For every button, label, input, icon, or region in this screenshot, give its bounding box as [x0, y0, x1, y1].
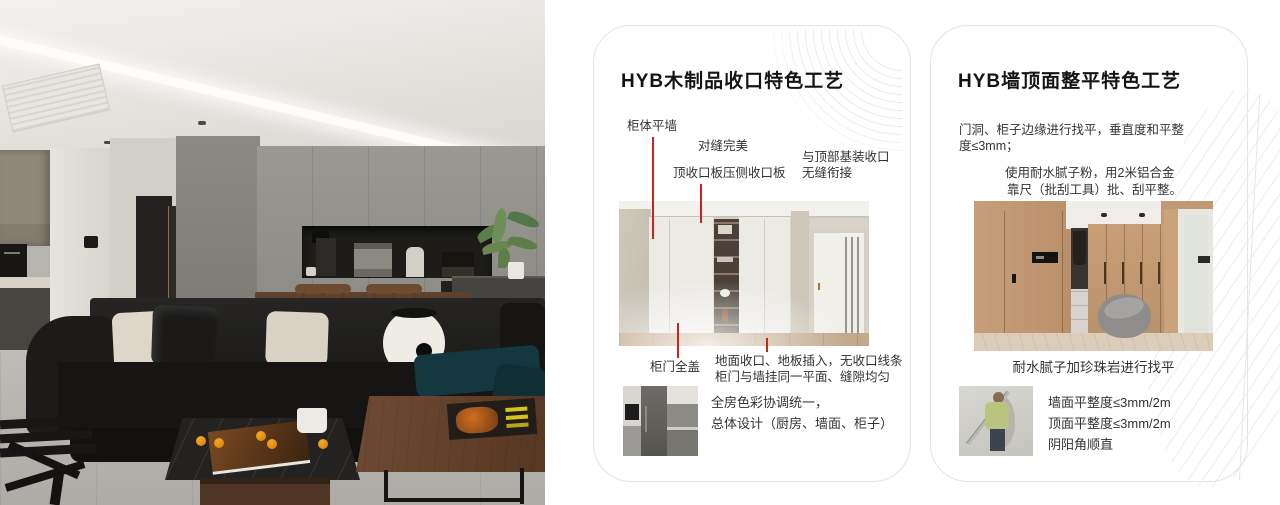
- label-cabinet-flush-wall: 柜体平墙: [627, 119, 677, 135]
- card1-notes-line1: 地面收口、地板插入，无收口线条: [715, 354, 903, 370]
- spec-corner-straightness: 阴阳角顺直: [1048, 434, 1171, 455]
- card1-footer-line1: 全房色彩协调统一，: [711, 392, 893, 413]
- card2-caption: 耐水腻子加珍珠岩进行找平: [974, 357, 1213, 378]
- photo-orange-fruit: [196, 436, 206, 446]
- label-full-cover-door: 柜门全盖: [650, 360, 700, 376]
- leader-line: [652, 137, 654, 239]
- photo-orange-fruit: [214, 438, 224, 448]
- photo-kitchen-upper-cabinet: [0, 150, 52, 246]
- card2-para1-line2: 度≤3mm；: [959, 139, 1184, 155]
- photo-built-in-appliance: [0, 244, 27, 279]
- photo-table-stretcher: [384, 498, 524, 502]
- card1-notes: 地面收口、地板插入，无收口线条 柜门与墙挂同一平面、缝隙均匀: [715, 354, 903, 385]
- card2-paragraph2: 使用耐水腻子粉，用2米铝合金 靠尺（批刮工具）批、刮平整。: [1005, 165, 1182, 198]
- photo-plant: [468, 200, 545, 282]
- photo-coffee-machine: [316, 238, 336, 276]
- leader-line: [677, 323, 679, 358]
- card-wood-finishing: HYB木制品收口特色工艺 柜体平墙 对缝完美 顶收口板压侧收口板 与顶部基装收口…: [593, 25, 911, 482]
- card2-para2-line1: 使用耐水腻子粉，用2米铝合金: [1005, 165, 1182, 182]
- photo-black-bench: [0, 410, 100, 505]
- photo-orange-fruit: [318, 439, 328, 449]
- spec-wall-flatness: 墙面平整度≤3mm/2m: [1048, 392, 1171, 413]
- photo-pillow-white: [265, 311, 329, 367]
- photo-coffee-table-base: [200, 478, 330, 505]
- card1-footer-line2: 总体设计（厨房、墙面、柜子）: [711, 413, 893, 434]
- card2-paragraph1: 门洞、柜子边缘进行找平，垂直度和平整 度≤3mm；: [959, 123, 1184, 154]
- fan-pattern-decoration: [750, 30, 902, 156]
- photo-mug: [306, 267, 316, 276]
- card1-footer: 全房色彩协调统一， 总体设计（厨房、墙面、柜子）: [711, 392, 893, 434]
- leader-line: [766, 338, 768, 352]
- photo-plant-pot: [508, 262, 524, 279]
- leader-line: [700, 184, 702, 223]
- label-ceiling-joint-line2: 无缝衔接: [802, 166, 890, 182]
- label-perfect-seam: 对缝完美: [698, 139, 748, 155]
- photo-espresso-machine: [354, 243, 392, 277]
- photo-white-mug: [297, 408, 327, 433]
- worker-thumb-image: [959, 386, 1033, 456]
- card1-title: HYB木制品收口特色工艺: [621, 66, 844, 93]
- wardrobe-render-image: [619, 201, 869, 346]
- photo-orange-fruit: [267, 439, 277, 449]
- card2-para2-line2: 靠尺（批刮工具）批、刮平整。: [1005, 182, 1182, 199]
- wardrobe-photo-image: [974, 201, 1213, 351]
- card2-para1-line1: 门洞、柜子边缘进行找平，垂直度和平整: [959, 123, 1184, 139]
- photo-pod-machine: [406, 247, 424, 277]
- living-room-photo: [0, 0, 545, 505]
- kitchen-thumb-image: [623, 386, 698, 456]
- card2-title: HYB墙顶面整平特色工艺: [958, 66, 1181, 93]
- card2-specs: 墙面平整度≤3mm/2m 顶面平整度≤3mm/2m 阴阳角顺直: [1048, 392, 1171, 455]
- page: { "colors": { "accent_red": "#c9251d", "…: [0, 0, 1280, 505]
- photo-kitchen-counter: [0, 277, 56, 288]
- label-ceiling-joint-line1: 与顶部基装收口: [802, 150, 890, 166]
- photo-magazine: [447, 398, 537, 440]
- spec-ceiling-flatness: 顶面平整度≤3mm/2m: [1048, 413, 1171, 434]
- photo-pillow-black: [151, 305, 219, 367]
- label-top-closing-panel: 顶收口板压侧收口板: [673, 166, 786, 182]
- label-ceiling-joint: 与顶部基装收口 无缝衔接: [802, 150, 890, 181]
- photo-light-switch: [84, 236, 98, 248]
- photo-coffee-niche: [302, 226, 492, 278]
- photo-orange-fruit: [256, 431, 266, 441]
- photo-ceiling-light: [198, 121, 206, 125]
- card1-notes-line2: 柜门与墙挂同一平面、缝隙均匀: [715, 370, 903, 386]
